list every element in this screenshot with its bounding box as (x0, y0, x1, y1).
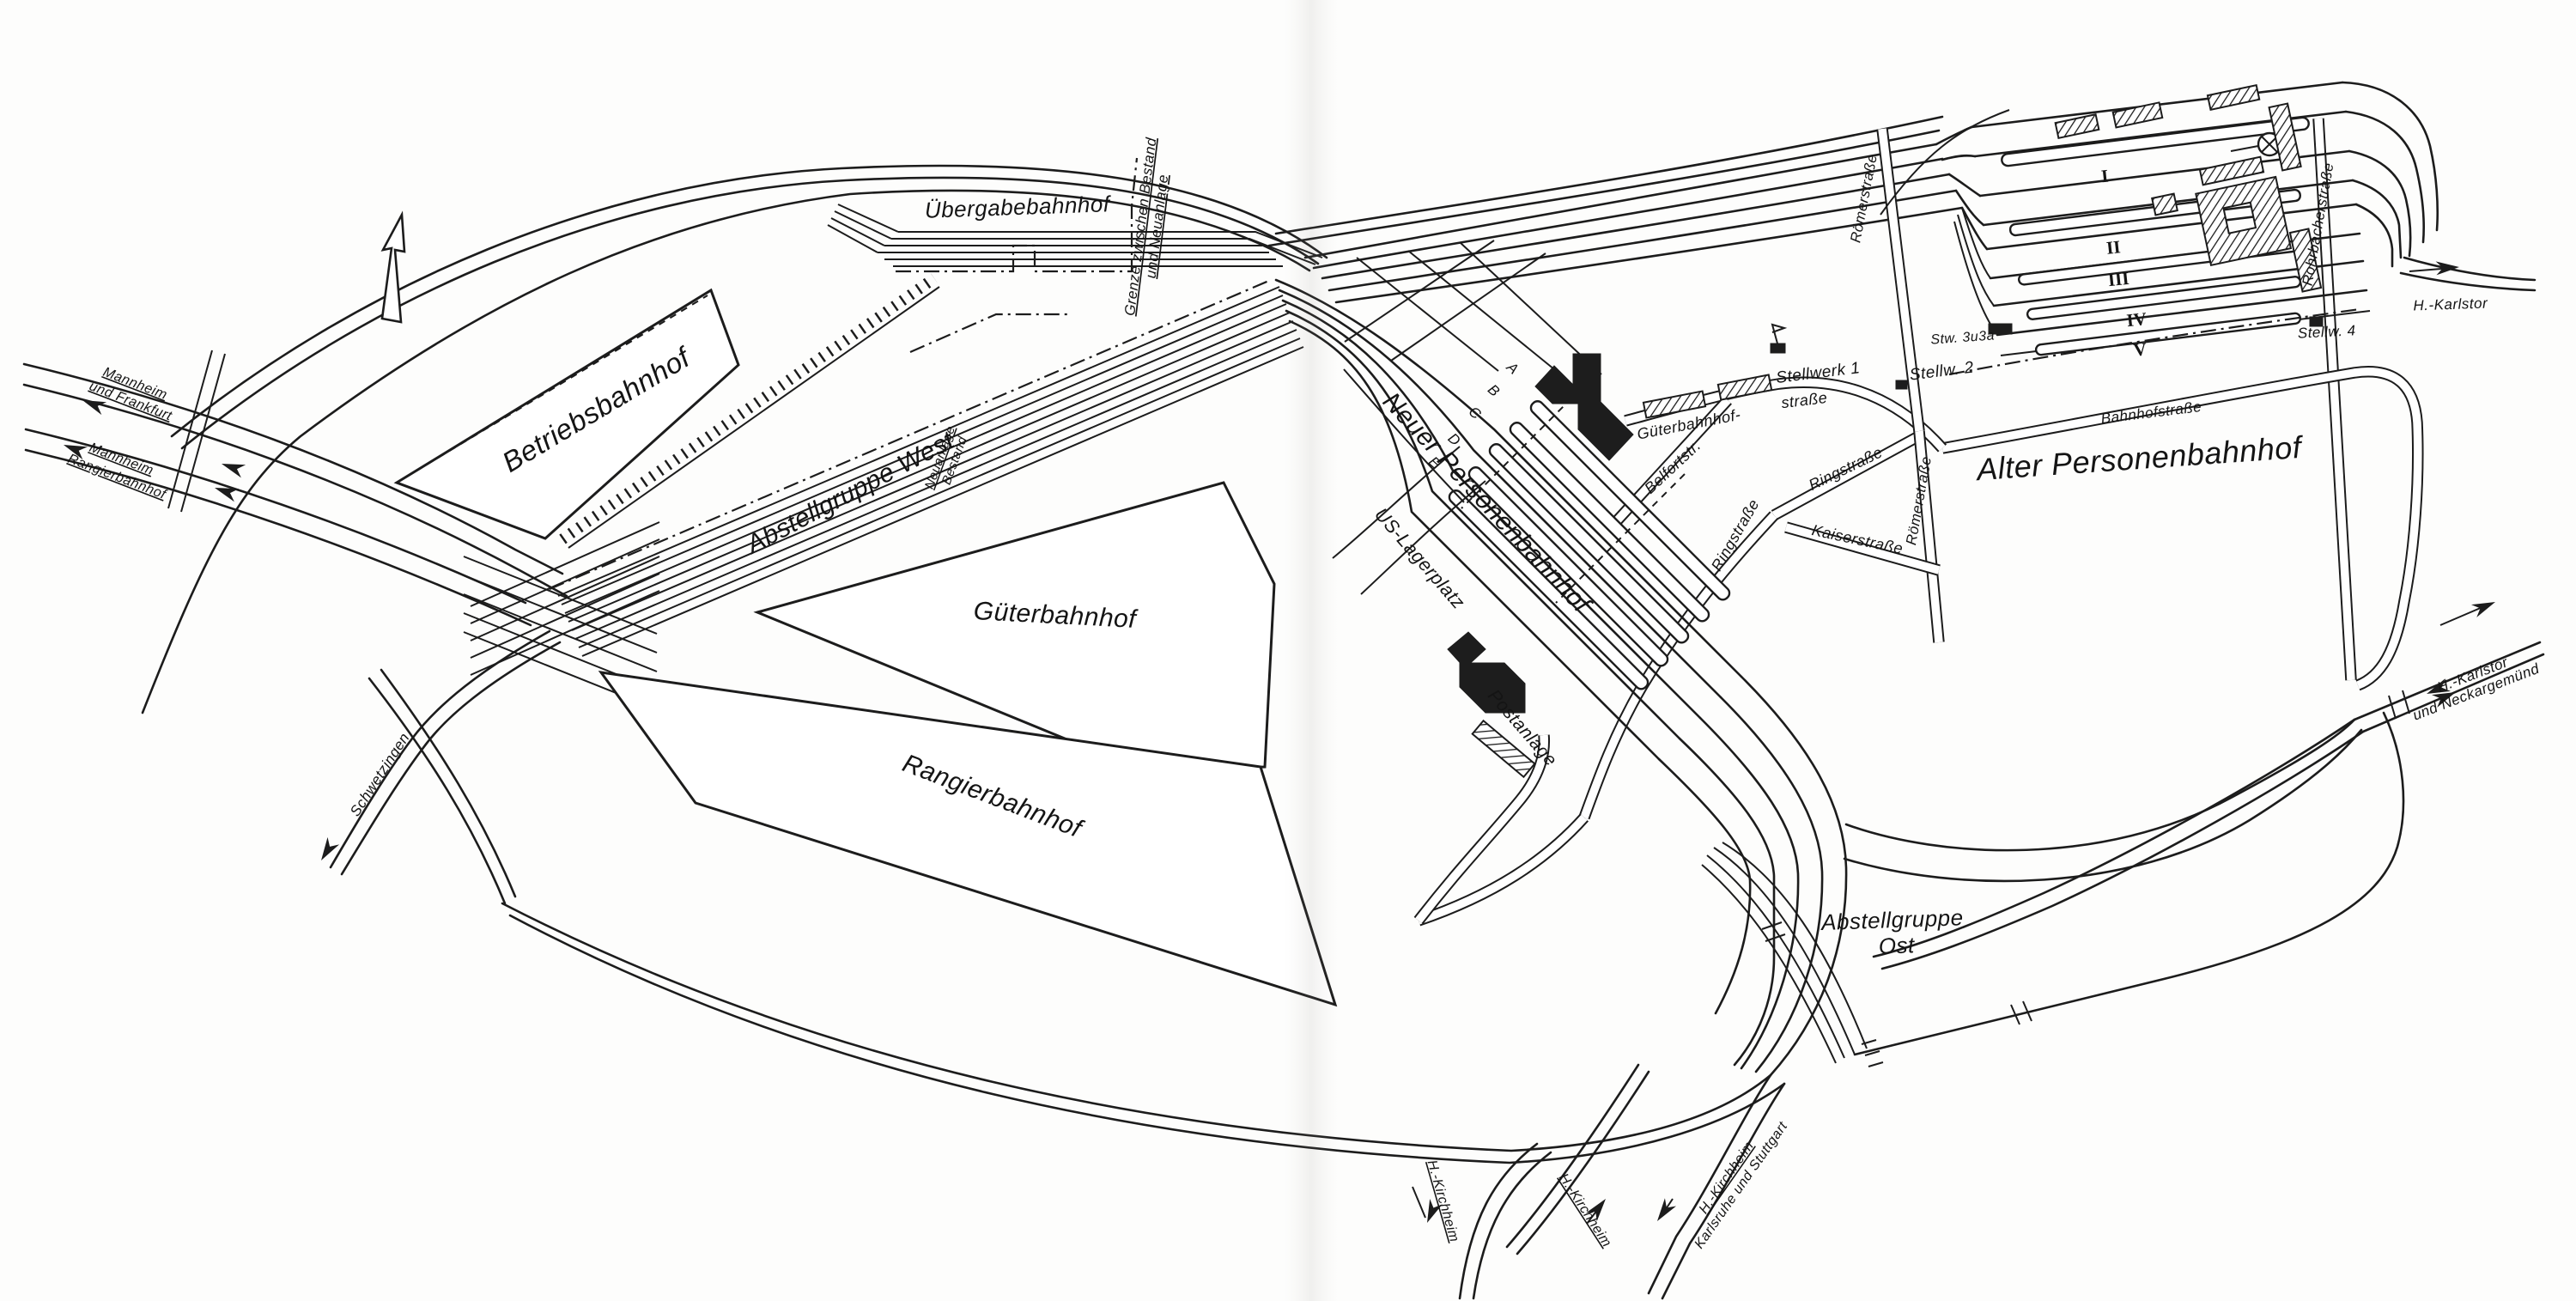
label-kirchheim-karlsruhe: H.-Kirchheim Karlsruhe und Stuttgart (1679, 1109, 1790, 1251)
label-grenze-boundary: Grenze zwischen Bestand und Neuanlage (1121, 132, 1176, 319)
track-numeral-3: III (2107, 268, 2130, 290)
label-kirchheim-mid: H.-Kirchheim (1556, 1171, 1614, 1250)
stellw2-symbol (1896, 380, 1907, 389)
track-plan-canvas: Betriebsbahnhof Abstellgruppe West Überg… (0, 0, 2576, 1301)
tracks-uebergabebahnhof (828, 158, 1322, 352)
label-roemerstrasse-nord: Römerstraße (1847, 153, 1880, 244)
tracks-right-exits (1874, 260, 2543, 969)
label-karlstor-neckargemuend: H.-Karlstor und Neckargemünd (2404, 644, 2542, 723)
label-ringstrasse-ne: Ringstraße (1806, 443, 1885, 494)
label-stellw2: Stellw. 2 (1909, 359, 1975, 385)
label-mannheim-rangierbahnhof: Mannheim Rangierbahnhof (66, 435, 175, 502)
label-stw3u3a: Stw. 3u3a (1930, 328, 1996, 347)
label-stellw4: Stellw. 4 (2297, 322, 2356, 342)
track-numeral-1: I (2100, 166, 2110, 187)
page-fold-shadow (1285, 0, 1338, 1301)
tracks-center-interlocking (1269, 117, 1962, 374)
old-station-shed-3 (2208, 85, 2259, 110)
label-belfortstrasse: Belfortstr. (1641, 436, 1704, 496)
label-uebergabebahnhof: Übergabebahnhof (924, 191, 1112, 223)
old-station-annex (2152, 194, 2178, 216)
platform-letter-a: A (1503, 358, 1522, 378)
track-numeral-2: II (2105, 236, 2122, 258)
street-gueterbahnhofstrasse (1625, 382, 1942, 448)
old-station-shed-1 (2056, 114, 2099, 138)
label-gueterbahnhofstrasse-2: straße (1780, 389, 1828, 411)
track-plan-page: Betriebsbahnhof Abstellgruppe West Überg… (0, 0, 2576, 1301)
track-numeral-4: IV (2125, 308, 2148, 331)
stellwerk1-symbol (1771, 343, 1785, 353)
label-bahnhofstrasse: Bahnhofstraße (2100, 398, 2202, 427)
old-station-main-building (2196, 177, 2291, 265)
track-numeral-5: V (2132, 338, 2148, 360)
platform-letter-b: B (1485, 381, 1504, 400)
tracks-south-curves (1659, 677, 2403, 1075)
old-station-shed-2 (2113, 102, 2163, 127)
label-abstellgruppe-west: Abstellgruppe West (740, 425, 959, 560)
street-station-forecourt (1419, 818, 1584, 921)
label-karlstor: H.-Karlstor (2413, 295, 2488, 313)
